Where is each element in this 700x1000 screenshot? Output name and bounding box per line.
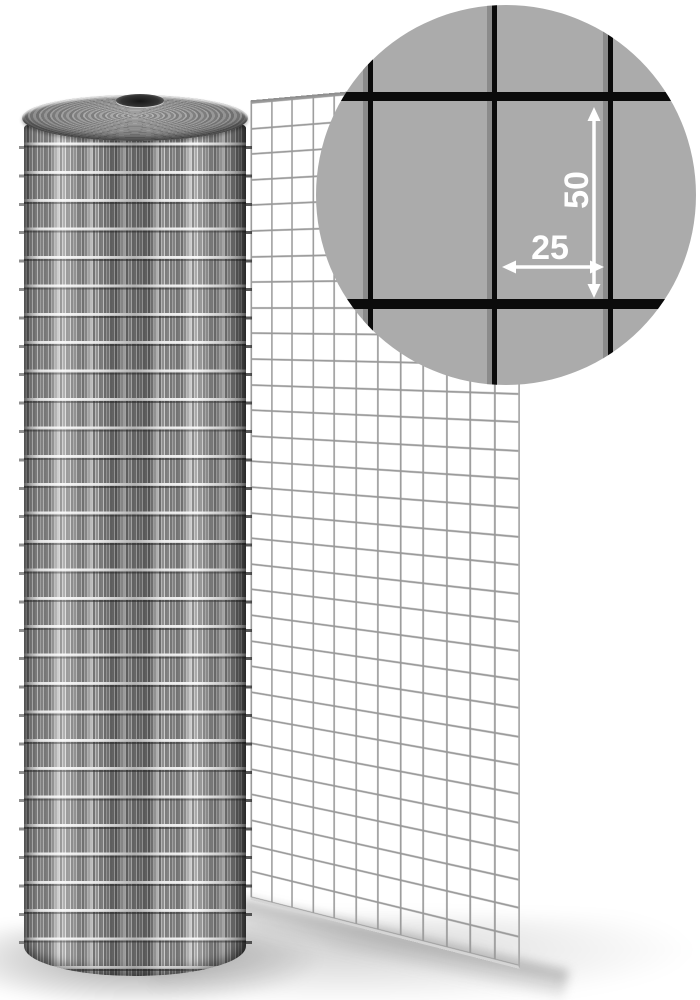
roll-core-hole <box>116 94 164 107</box>
dimension-arrows <box>316 5 696 385</box>
magnifier-circle: 50 25 <box>316 5 696 385</box>
roll-right-wire-ends <box>246 146 252 958</box>
vertical-dimension-label: 50 <box>547 160 607 220</box>
product-illustration: 50 25 <box>0 0 700 1000</box>
roll-body <box>24 114 246 976</box>
horizontal-dimension-label: 25 <box>520 225 580 271</box>
